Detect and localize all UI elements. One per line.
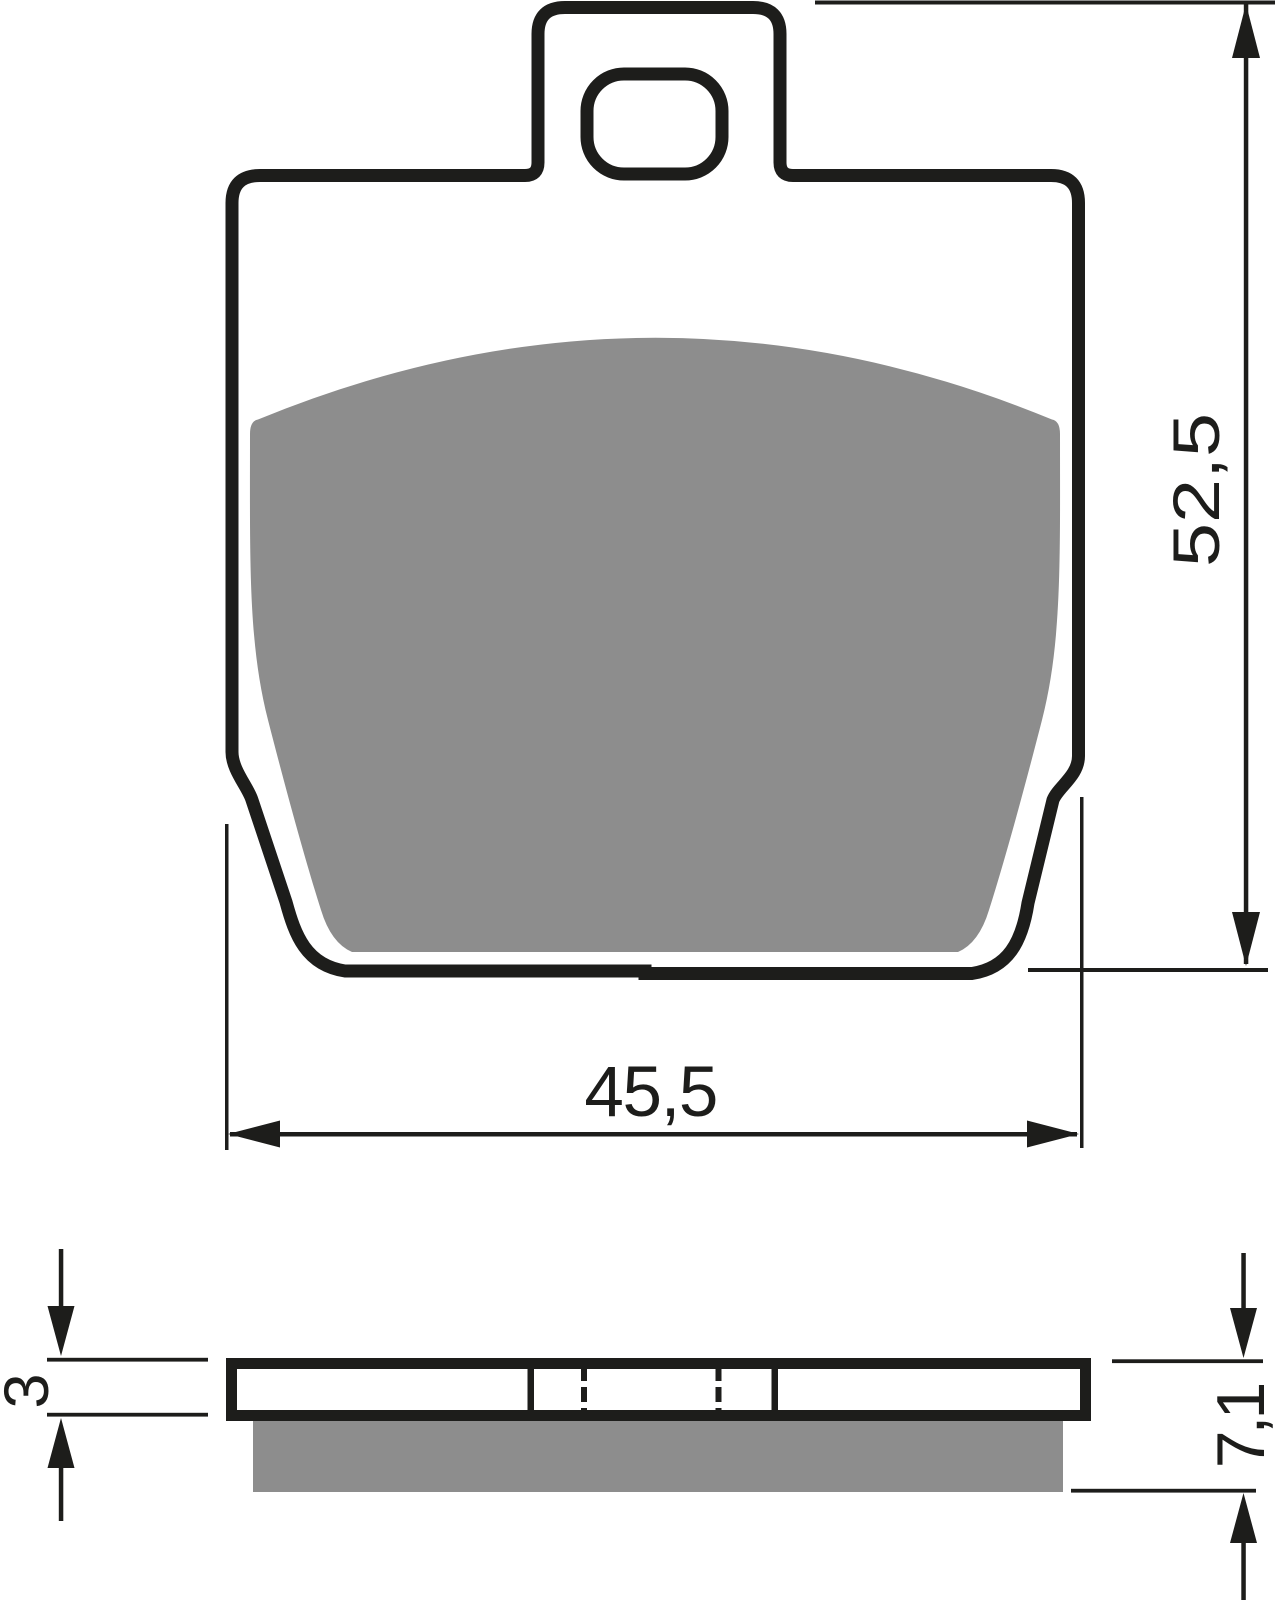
svg-text:52,5: 52,5 bbox=[1160, 413, 1233, 567]
svg-text:45,5: 45,5 bbox=[584, 1053, 717, 1132]
svg-text:7,1: 7,1 bbox=[1203, 1385, 1275, 1469]
svg-text:3: 3 bbox=[0, 1373, 62, 1408]
